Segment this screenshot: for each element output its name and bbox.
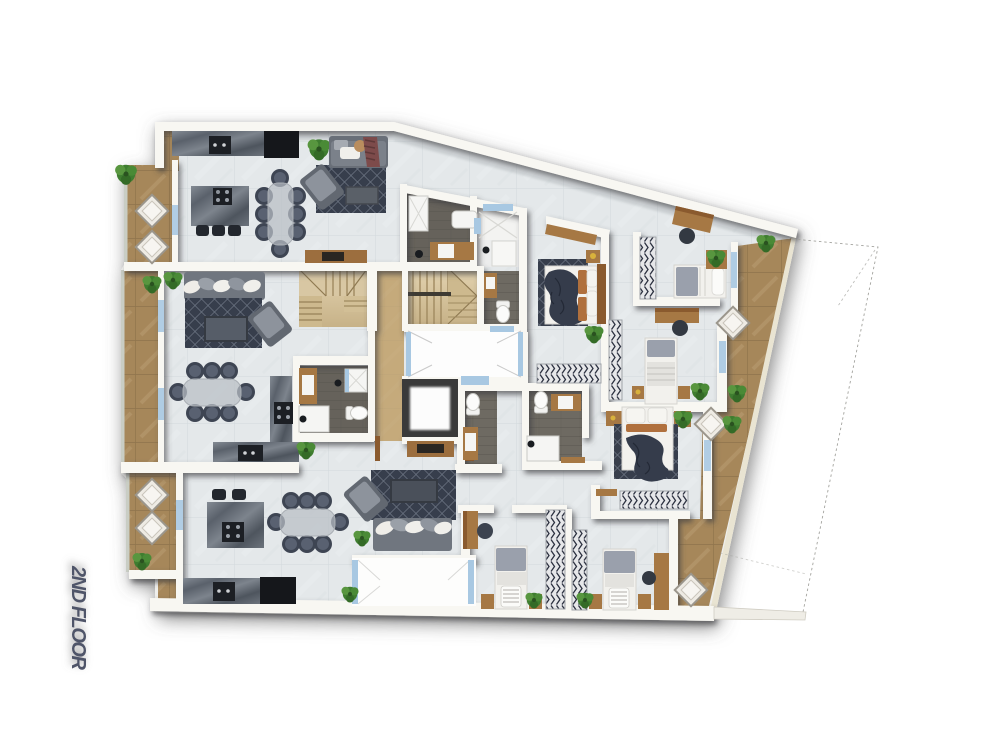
svg-text:2ND FLOOR: 2ND FLOOR bbox=[67, 565, 89, 671]
